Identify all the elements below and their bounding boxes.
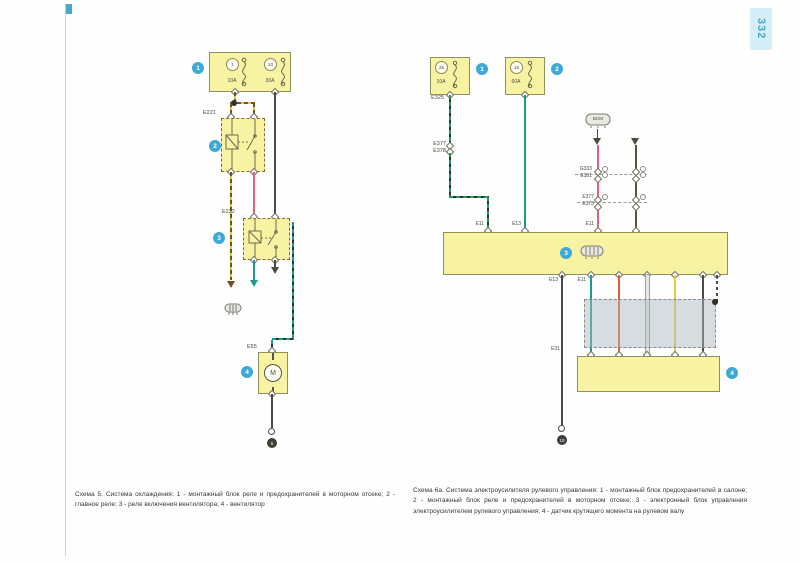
callout-left-2: 2 [209, 140, 221, 152]
fuse-10-icon [278, 56, 288, 88]
pin [632, 203, 640, 211]
wire-to-fan-h [272, 338, 294, 340]
wire-e222-stub [274, 260, 276, 267]
label-e31: E31 [544, 347, 560, 352]
label-g333: G333 [570, 167, 592, 172]
from-arrow-icon [593, 138, 601, 145]
caption-right: Схема 6а. Система электроусилителя рулев… [413, 486, 747, 517]
wire-f18 [524, 95, 526, 232]
ecu-connector-icon [580, 245, 604, 260]
pin-dot [640, 194, 646, 200]
label-e11-right: E11 [576, 222, 594, 227]
motor-stub [272, 353, 274, 360]
ground-arrow-icon [227, 281, 235, 288]
relay-e222 [243, 218, 290, 260]
wire-e222-to-ground [253, 260, 255, 280]
callout-right-3: 3 [560, 247, 572, 259]
pin [632, 175, 640, 183]
page-number: 332 [755, 18, 767, 39]
page-number-tab: 332 [750, 8, 772, 50]
pin-dot [640, 172, 646, 178]
bcm-stem [597, 129, 598, 138]
ring-terminal-icon [558, 425, 565, 432]
wire-f26-v1 [449, 95, 451, 144]
label-e377: E377 [424, 142, 446, 148]
label-e377b: E377 [572, 195, 594, 200]
ring-terminal-icon [268, 428, 275, 435]
ground-arrow-icon [250, 280, 258, 287]
wire-motor-to-ground [271, 394, 273, 428]
fuse-1-amps: 10A [223, 79, 241, 84]
callout-right-4: 4 [726, 367, 738, 379]
manual-page: 332 1 1 10A 10 30A E221 [0, 0, 800, 565]
cable-shield [584, 299, 716, 348]
callout-right-1: 1 [476, 63, 488, 75]
bcm-label: BCM [585, 116, 611, 121]
ground-point-icon: 5 [267, 438, 277, 448]
wire-bcm-pink [597, 145, 599, 232]
motor-e55-label: E55 [247, 345, 257, 351]
torque-sensor [577, 356, 720, 392]
label-e13-top: E13 [503, 222, 521, 227]
wire-f26-v2 [449, 153, 451, 198]
wire-ecu-ground [561, 275, 563, 425]
label-e11-out: E11 [570, 278, 586, 283]
fan-motor: M [258, 352, 288, 394]
fuse-18-icon [525, 60, 535, 90]
fuse-26-amps: 10A [432, 80, 450, 85]
relay-symbol [222, 119, 266, 173]
fuse-1-circle: 1 [226, 58, 239, 71]
wire-f26-h [449, 196, 489, 198]
label-e325: E325 [424, 96, 444, 102]
from-arrow-icon [631, 138, 639, 145]
fuse-10-circle: 10 [264, 58, 277, 71]
motor-icon: M [264, 364, 282, 382]
wire-e221-to-e222 [253, 172, 255, 218]
callout-left-3: 3 [213, 232, 225, 244]
fuse-26-icon [450, 60, 460, 90]
callout-left-1: 1 [192, 62, 204, 74]
corner-mark [66, 4, 72, 14]
fuse-10-amps: 30A [261, 79, 279, 84]
wire-shield-drain [716, 275, 718, 302]
wire-to-fan-v1 [292, 222, 294, 340]
label-e11-top: E11 [466, 222, 484, 227]
label-e13-out: E13 [542, 278, 558, 283]
fuse-18-amps: 60A [507, 80, 525, 85]
fuse-26-circle: 26 [435, 61, 448, 74]
relay-e221-label: E221 [203, 111, 216, 117]
left-margin-rule [65, 4, 66, 556]
wire-bcm-brown [635, 145, 637, 232]
ground-arrow-icon [271, 267, 279, 274]
callout-left-4: 4 [241, 366, 253, 378]
shield-junction-dot [712, 299, 718, 305]
callout-right-2: 2 [551, 63, 563, 75]
caption-left: Схема 5. Система охлаждения: 1 - монтажн… [75, 490, 395, 511]
fuse-18-circle: 18 [510, 61, 523, 74]
pin [594, 203, 602, 211]
wire-fuse10-to-e222 [274, 92, 276, 218]
relay-e222-label: E222 [222, 210, 235, 216]
relay-symbol [244, 219, 291, 261]
connector-icon [224, 303, 242, 316]
label-e378: E378 [424, 149, 446, 155]
pin-dot [602, 172, 608, 178]
wire-e221-to-ground [230, 172, 232, 280]
relay-e221 [221, 118, 265, 172]
pin [594, 175, 602, 183]
ground-point-icon: 10 [557, 435, 567, 445]
pin-dot [602, 194, 608, 200]
